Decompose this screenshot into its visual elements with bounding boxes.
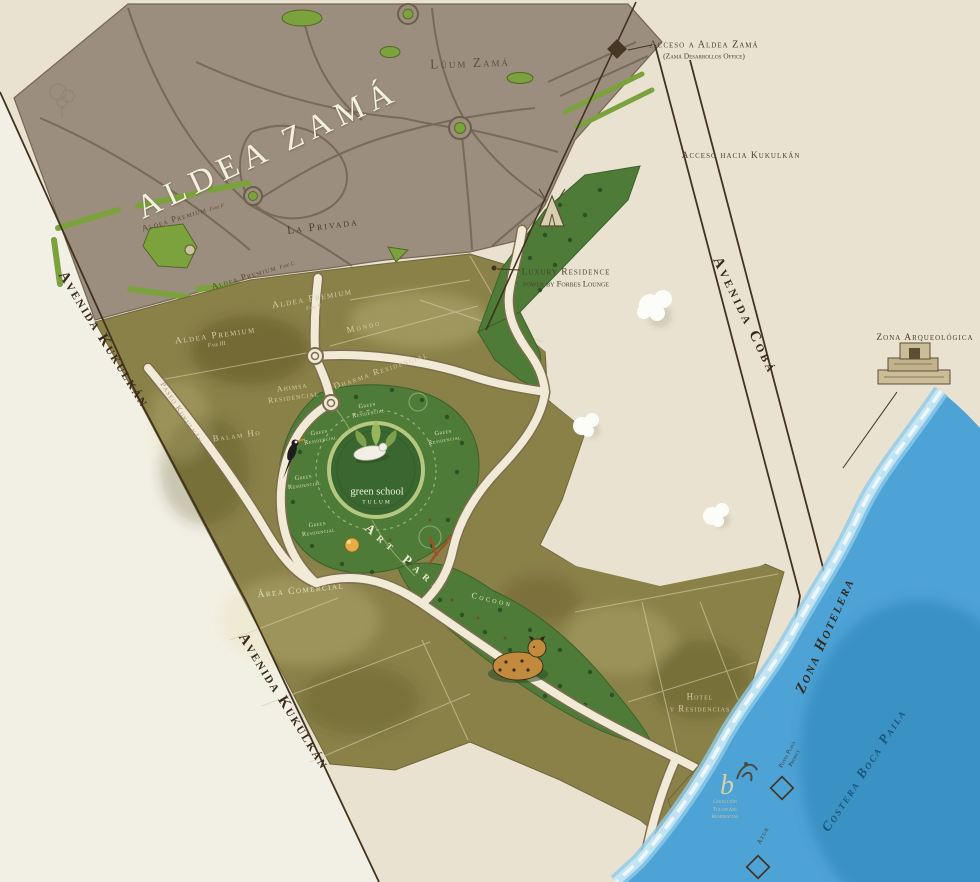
dome-icon — [345, 538, 359, 552]
luxury-pointer-dot — [492, 266, 497, 271]
map-illustration — [0, 0, 980, 882]
park-pond — [185, 245, 195, 255]
green-school-campus — [329, 420, 423, 517]
aldea-zama-masterplan-map: Aldea Zamá Lúum Zamá Acceso a Aldea Zamá… — [0, 0, 980, 882]
